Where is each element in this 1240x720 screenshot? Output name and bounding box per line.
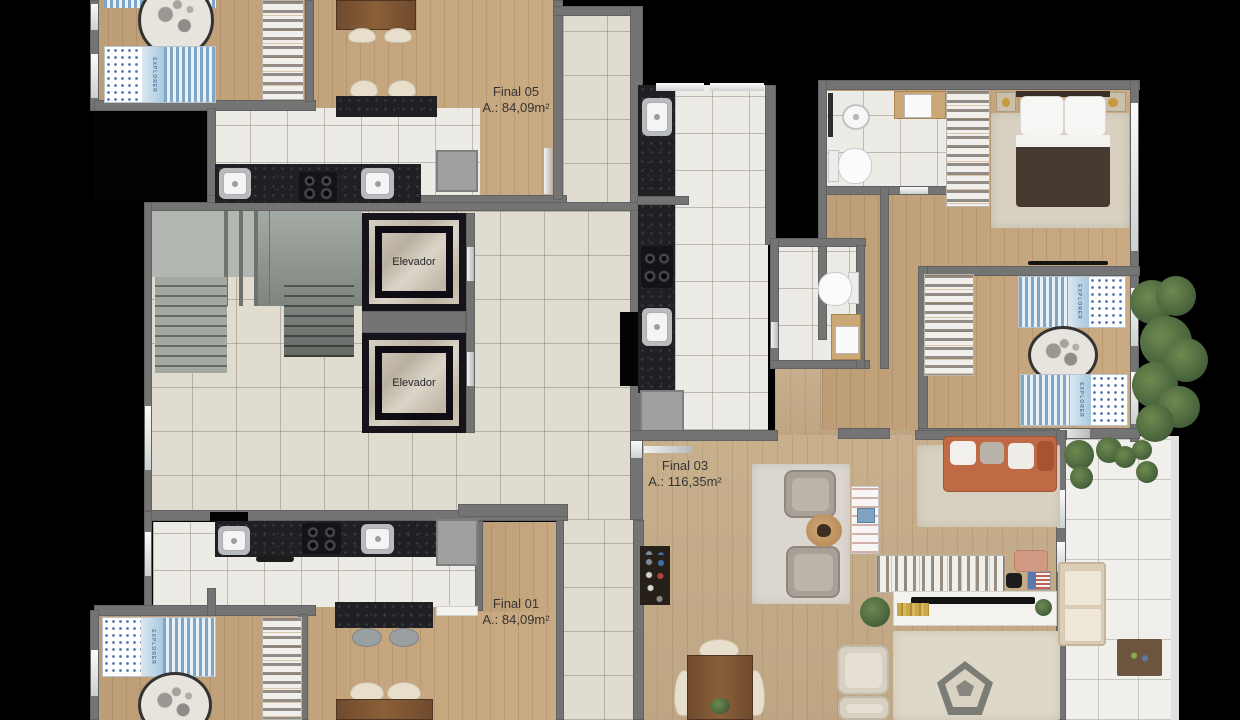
unit-name: Final 03 [633,458,737,474]
wardrobe [946,90,990,207]
bar-stool [389,628,419,647]
bar-stool [352,628,382,647]
wall [144,202,152,520]
vanity-sink [904,94,932,118]
wall [765,85,776,245]
bed-brand-text: EXPLORER [149,629,155,665]
hallway-down-floor [560,520,636,720]
bed-sheet-fold [1016,135,1110,147]
kitchen-sink [642,98,672,136]
books-stack [897,603,929,616]
kitchen-sink [218,526,250,555]
vanity-sink [835,326,859,354]
dining-chair [348,28,376,43]
kitchen-sink [642,308,672,346]
elevator-2-label: Elevador [375,346,453,420]
bed-pillow-section [105,47,142,102]
topiary-plant [1136,461,1158,483]
unit-area: A.: 84,09m² [464,100,568,116]
hallway-up-floor [563,16,630,208]
refrigerator [436,150,478,192]
window [145,406,151,470]
bed-pillow-section [1089,277,1125,327]
wall [818,80,1140,90]
elevator-label-text: Elevador [392,256,435,268]
bed-pillow [1020,96,1064,136]
bed-duvet-stripes [164,47,215,102]
dining-chair [384,28,412,43]
wall [838,428,890,439]
table-plant [710,698,730,714]
balcony-railing [1171,436,1179,720]
side-table [806,514,842,547]
sofa-cushion [1064,570,1102,606]
toilet [818,272,852,306]
sofa-pillow [980,442,1004,464]
bed-brand-text: EXPLORER [1075,284,1081,320]
breakfast-bar [335,602,433,628]
elevator-1-label: Elevador [375,226,453,298]
unit-label-final01: Final 01 A.: 84,09m² [464,596,568,628]
bed-brand-text: EXPLORER [150,57,156,93]
tv-screen [911,597,1035,604]
stair-railing [224,211,270,306]
unit-name: Final 05 [464,84,568,100]
wall [770,238,779,369]
kid-bed: EXPLORER [104,46,216,103]
window [145,532,151,576]
bed-pillow-section [1091,375,1127,425]
wall [362,311,466,333]
door-opening-final03 [631,441,642,458]
kid-bed: EXPLORER [1020,374,1128,426]
sofa-pillow [1008,443,1034,469]
armchair [838,696,890,720]
armchair [784,470,836,518]
wardrobe [262,0,304,100]
refrigerator [436,519,478,566]
door-leaf [644,446,692,453]
potted-plant [1035,599,1052,616]
master-bed [1016,91,1110,207]
counter-shelf [256,556,294,562]
window [710,83,764,91]
sofa [943,436,1057,492]
bed-duvet [1016,147,1110,207]
wall [770,360,870,369]
kid-bed: EXPLORER [102,617,216,677]
tv-screen [1028,261,1108,265]
outdoor-sofa [1058,562,1106,646]
elevator-door [467,352,474,386]
bed-brand-text: EXPLORER [1077,382,1083,418]
armchair [837,645,889,695]
wall [144,202,640,211]
wall [880,186,889,369]
wall [94,605,316,616]
kid-bed: EXPLORER [1018,276,1126,328]
window [656,83,704,91]
unit-area: A.: 84,09m² [464,612,568,628]
laundry-panel [640,555,670,605]
void [94,111,207,200]
bathroom-sink [842,104,870,130]
foliage [1136,404,1174,442]
window [91,54,98,98]
stair-flight [284,277,354,357]
outdoor-table-mat [1117,639,1162,676]
closet-rack [876,555,1006,593]
nightstand [996,92,1016,112]
toilet [838,148,872,184]
wall [207,588,216,616]
dining-table [336,0,416,30]
unit-name: Final 01 [464,596,568,612]
foliage [1156,276,1196,316]
kitchen-sink [361,168,394,199]
wall [466,213,475,433]
decor-object [1006,573,1022,588]
potted-plant [860,597,890,627]
armchair [786,546,840,598]
wall [637,196,689,205]
bed-brand-band: EXPLORER [1070,375,1091,425]
bed-brand-band: EXPLORER [141,618,163,676]
kitchen-sink [219,168,251,199]
wardrobe [924,274,974,376]
shaft-duct [620,312,638,386]
sofa-cushion [1064,608,1102,642]
floor-plan: Elevador Elevador [0,0,1240,720]
bed-duvet-stripes [163,618,215,676]
elevator-2: Elevador [362,333,466,433]
bed-brand-band: EXPLORER [142,47,164,102]
wall [772,238,866,247]
bed-brand-band: EXPLORER [1068,277,1089,327]
unit-label-final03: Final 03 A.: 116,35m² [633,458,737,490]
shower-glass [828,93,833,137]
bed-pillow-section [103,618,141,676]
sofa-pillow [950,441,976,465]
elevator-label-text: Elevador [392,377,435,389]
wall [305,0,314,102]
wall [630,430,778,441]
stair-flight [155,277,227,373]
entry-recess-final01 [210,512,248,521]
window [91,4,98,30]
door-opening [900,187,928,194]
topiary-plant [1070,466,1093,489]
elevator-1: Elevador [362,213,466,311]
window [1131,103,1138,251]
dining-table [336,699,433,720]
picture-frame [857,508,875,523]
flag-picture [1027,571,1051,590]
topiary-plant [1132,440,1152,460]
kitchen-sink [361,524,394,554]
stove-cooktop [641,246,673,288]
unit-area: A.: 116,35m² [633,474,737,490]
tree-plant [1130,276,1216,442]
sofa-pillow [1037,441,1054,471]
stove-cooktop [299,172,337,202]
door-leaf [544,148,552,194]
kitchen-counter [336,96,437,117]
bed-duvet-stripes [1021,375,1070,425]
lounge-chair [1014,550,1048,572]
refrigerator [640,390,684,432]
bed-pillow [1064,96,1106,136]
window [91,650,98,696]
door-leaf [771,322,778,348]
wardrobe [262,617,302,720]
unit-label-final05: Final 05 A.: 84,09m² [464,84,568,116]
stove-cooktop [302,523,341,554]
bed-duvet-stripes [1019,277,1068,327]
elevator-door [467,247,474,281]
wall [458,504,568,517]
